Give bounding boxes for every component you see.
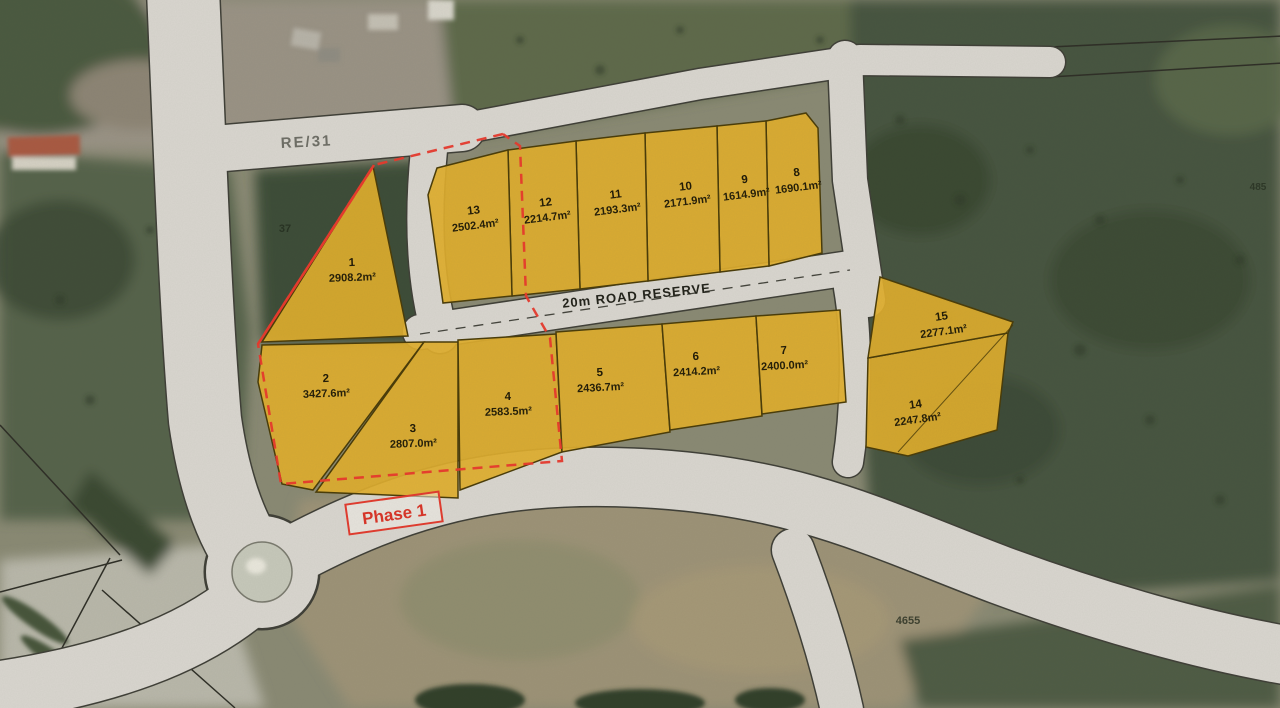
image-grain-overlay [0, 0, 1280, 708]
site-plan-map: 12908.2m²23427.6m²32807.0m²42583.5m²5243… [0, 0, 1280, 708]
subdivision-plan-canvas: 12908.2m²23427.6m²32807.0m²42583.5m²5243… [0, 0, 1280, 708]
